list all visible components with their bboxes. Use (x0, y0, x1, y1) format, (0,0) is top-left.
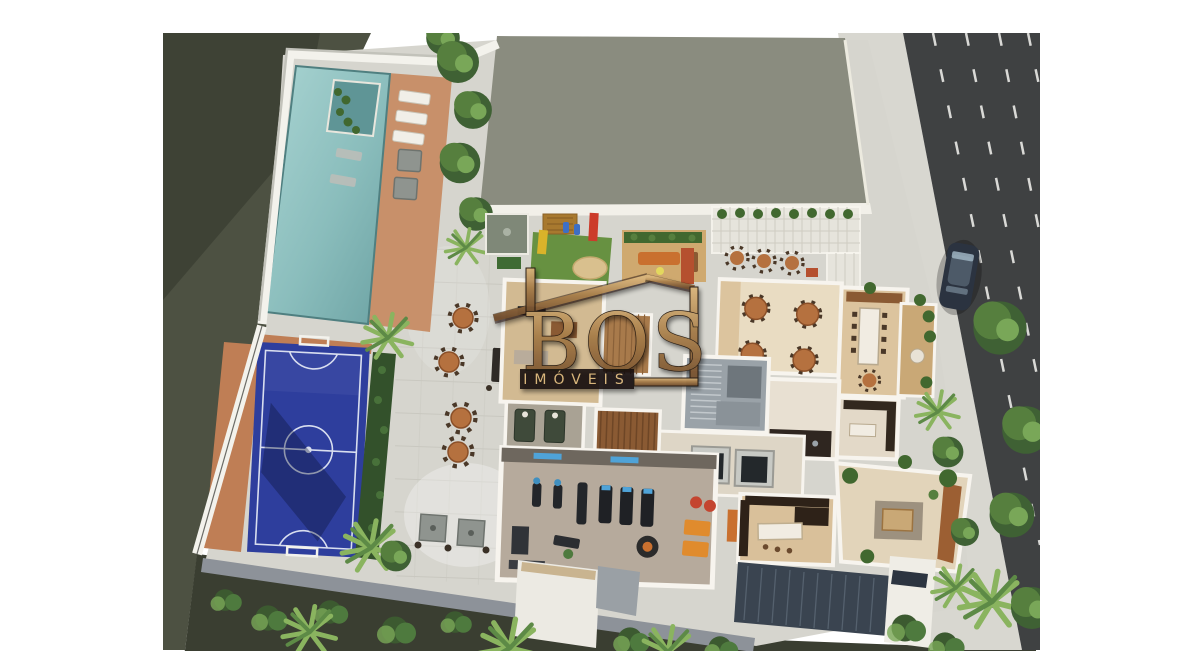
roof-slab (480, 36, 868, 208)
cabana-planter (497, 257, 521, 269)
kitchen (837, 397, 899, 459)
gourmet-lounge (833, 463, 971, 572)
treadmills (598, 485, 654, 527)
balcony (898, 303, 937, 396)
watermark: BOS IMÓVEIS (494, 268, 709, 389)
long-table (858, 308, 880, 365)
futsal-court (247, 334, 370, 559)
ramp (596, 566, 640, 616)
gym-locker (727, 510, 738, 542)
sauna (595, 409, 660, 453)
storage-cabinet (681, 248, 694, 284)
render-canvas: BOS IMÓVEIS (0, 0, 1200, 672)
yoga-mats (684, 519, 711, 536)
tower-roof (479, 36, 872, 216)
brand-subtitle: IMÓVEIS (523, 370, 630, 388)
sandbox (573, 257, 607, 279)
lounge-table (882, 509, 913, 531)
interior-plant (898, 455, 912, 469)
bar-island (758, 523, 802, 540)
court-zone (197, 314, 412, 571)
gym-tv-2 (610, 456, 638, 463)
sofa (638, 252, 680, 265)
wine-bar (738, 494, 835, 565)
massage-room (505, 402, 585, 451)
gym-tv (533, 453, 561, 460)
